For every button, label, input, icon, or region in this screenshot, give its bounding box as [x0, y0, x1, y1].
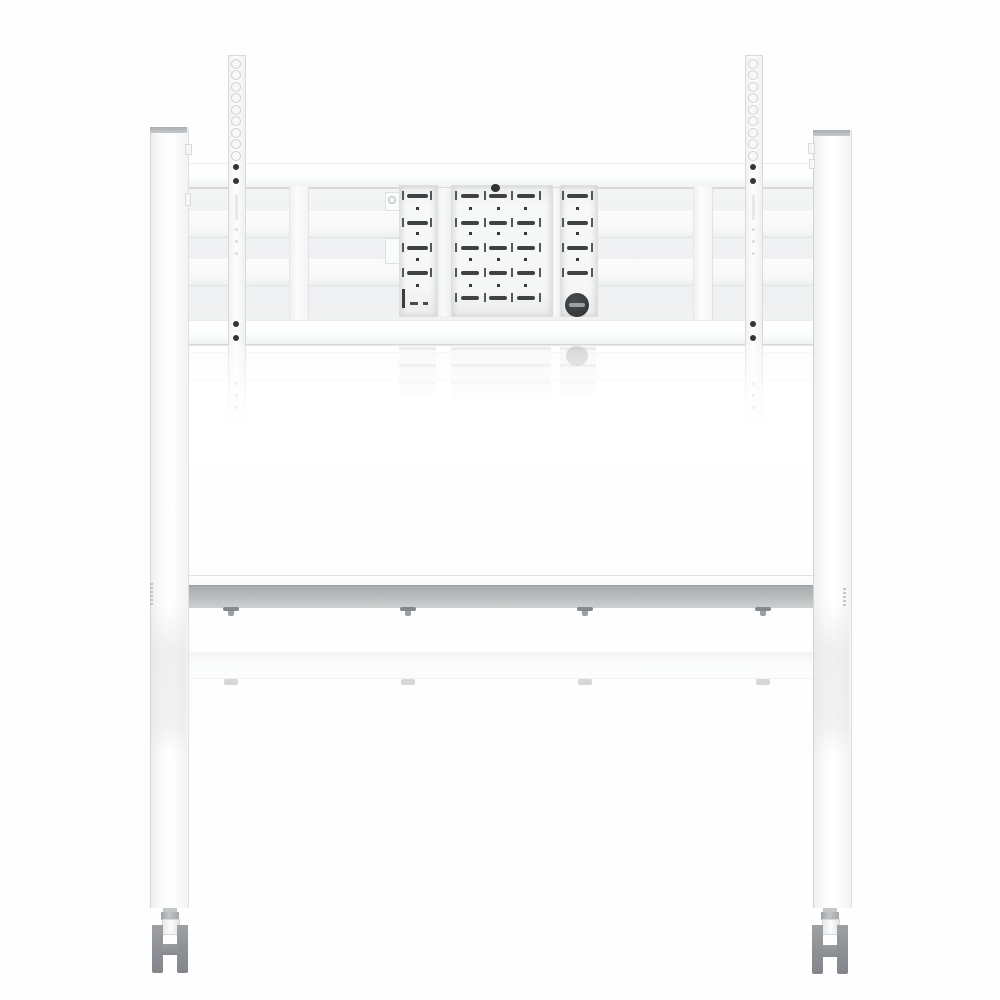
- right-caster-fork-back: [837, 925, 848, 974]
- vesa-slot: [489, 296, 507, 300]
- vesa-slot: [567, 194, 588, 198]
- vesa-tick: [484, 293, 486, 302]
- rail-hole-faint: [752, 394, 755, 397]
- vesa-dot: [497, 258, 500, 261]
- vesa-tick: [562, 218, 564, 227]
- right-caster-fork-front: [812, 925, 823, 974]
- vesa-slot: [517, 246, 535, 250]
- shelf-screw-tip: [760, 611, 766, 616]
- vesa-tick: [402, 243, 404, 252]
- rail-hole: [748, 139, 758, 149]
- vesa-tick: [430, 268, 432, 277]
- vesa-dot: [497, 207, 500, 210]
- inner-vertical-right: [693, 186, 713, 320]
- rail-hole-faint: [235, 382, 238, 385]
- rail-slot: [235, 194, 238, 220]
- vesa-slot: [517, 221, 535, 225]
- right-leg-top-cap: [813, 130, 850, 136]
- vesa-slot: [461, 194, 479, 198]
- vesa-slot: [407, 271, 428, 275]
- vesa-tick: [484, 218, 486, 227]
- vesa-tick: [455, 293, 457, 302]
- rail-hole: [231, 128, 241, 138]
- right-leg-column: [813, 130, 852, 908]
- vesa-dot: [576, 232, 579, 235]
- shelf-screw-tip: [228, 611, 234, 616]
- vesa-slot: [461, 246, 479, 250]
- vesa-slot: [567, 246, 588, 250]
- left-leg-label-marks: [150, 583, 153, 607]
- vesa-slot: [517, 271, 535, 275]
- rail-hole: [748, 70, 758, 80]
- rail-screw: [750, 321, 756, 327]
- lower-crossbar: [185, 320, 815, 346]
- left-leg-screw-nub: [185, 144, 192, 155]
- vesa-tick: [539, 268, 541, 277]
- vesa-dot: [524, 232, 527, 235]
- vesa-dot: [497, 232, 500, 235]
- vesa-dot: [416, 258, 419, 261]
- left-leg-column: [150, 127, 189, 908]
- vesa-tick: [455, 218, 457, 227]
- vesa-tick: [562, 191, 564, 200]
- vesa-tick: [455, 191, 457, 200]
- plate-gap-bar-left: [436, 188, 451, 316]
- vesa-tick: [402, 191, 404, 200]
- vesa-slot: [461, 221, 479, 225]
- rail-hole-faint: [235, 406, 238, 409]
- product-photo-canvas: [0, 0, 1000, 1000]
- left-leg-top-cap: [150, 127, 187, 133]
- vesa-dot: [469, 284, 472, 287]
- vesa-dot: [416, 207, 419, 210]
- vesa-tick: [402, 218, 404, 227]
- vesa-slot: [567, 221, 588, 225]
- left-leg-screw-nub-2: [185, 193, 191, 206]
- reflection-fade: [186, 345, 814, 463]
- vesa-tick: [430, 191, 432, 200]
- vesa-tick: [562, 243, 564, 252]
- vesa-slot: [461, 271, 479, 275]
- vesa-slot: [489, 246, 507, 250]
- vesa-tick: [402, 268, 404, 277]
- rail-screw: [233, 335, 239, 341]
- vesa-tick: [591, 191, 593, 200]
- shelf-reflection: [187, 652, 813, 679]
- vesa-tick: [430, 218, 432, 227]
- right-leg-label-marks: [843, 588, 846, 606]
- rail-screw: [750, 335, 756, 341]
- lock-knob-slot: [569, 303, 585, 307]
- vesa-tick: [430, 243, 432, 252]
- rail-screw: [750, 164, 756, 170]
- rail-hole: [231, 59, 241, 69]
- rail-hole: [231, 151, 241, 161]
- left-caster-fork-back: [177, 925, 188, 973]
- right-leg-screw-nub: [808, 143, 815, 154]
- rail-hole: [748, 105, 758, 115]
- shelf-screw-reflection: [578, 679, 592, 685]
- vesa-tick: [484, 191, 486, 200]
- rail-screw: [233, 178, 239, 184]
- vesa-slot: [489, 221, 507, 225]
- vesa-dot: [469, 258, 472, 261]
- vesa-dot: [524, 207, 527, 210]
- plate-top-hole: [491, 184, 500, 192]
- rail-hole: [231, 105, 241, 115]
- vesa-tick: [591, 243, 593, 252]
- rail-hole: [748, 116, 758, 126]
- rail-hole: [231, 70, 241, 80]
- rail-hole: [231, 93, 241, 103]
- vesa-slot: [489, 194, 507, 198]
- left-plate-vertical-slot: [402, 289, 405, 308]
- vesa-tick: [591, 218, 593, 227]
- vesa-tick: [539, 243, 541, 252]
- vesa-dot: [416, 232, 419, 235]
- vesa-tick: [539, 218, 541, 227]
- rail-hole-small: [235, 228, 238, 231]
- vesa-dot: [576, 207, 579, 210]
- vesa-slot: [489, 271, 507, 275]
- rail-hole-small: [752, 252, 755, 255]
- shelf-screw-reflection: [756, 679, 770, 685]
- vesa-slot: [567, 271, 588, 275]
- right-leg-screw-nub-2: [809, 159, 815, 169]
- vesa-dot: [524, 258, 527, 261]
- rail-hole-faint: [752, 382, 755, 385]
- vesa-tick: [484, 268, 486, 277]
- left-plate-dash: [410, 302, 418, 305]
- rail-hole-small: [752, 228, 755, 231]
- rail-hole: [231, 116, 241, 126]
- vesa-slot: [407, 246, 428, 250]
- shelf-screw-reflection: [224, 679, 238, 685]
- vesa-tick: [511, 191, 513, 200]
- rail-hole-small: [752, 240, 755, 243]
- rail-slot: [752, 194, 755, 220]
- rail-hole: [748, 128, 758, 138]
- rail-hole: [748, 82, 758, 92]
- vesa-dot: [469, 207, 472, 210]
- rail-screw: [233, 321, 239, 327]
- vesa-slot: [407, 221, 428, 225]
- vesa-slot: [461, 296, 479, 300]
- left-caster-fork-front: [152, 925, 163, 973]
- left-plate-dash-2: [423, 302, 428, 305]
- rail-hole-faint: [235, 394, 238, 397]
- vesa-tick: [539, 191, 541, 200]
- rail-hole: [748, 59, 758, 69]
- shelf-front-edge: [187, 585, 813, 608]
- vesa-dot: [416, 284, 419, 287]
- vesa-tick: [539, 293, 541, 302]
- rail-hole: [748, 151, 758, 161]
- vesa-dot: [524, 284, 527, 287]
- right-leg-shading: [814, 605, 849, 755]
- vesa-dot: [469, 232, 472, 235]
- vesa-dot: [497, 284, 500, 287]
- vesa-tick: [484, 243, 486, 252]
- shelf-screw-reflection: [401, 679, 415, 685]
- rail-hole-small: [235, 240, 238, 243]
- rail-screw: [750, 178, 756, 184]
- shelf-screw-tip: [582, 611, 588, 616]
- vesa-tick: [455, 268, 457, 277]
- left-leg-shading: [151, 605, 186, 755]
- vesa-tick: [562, 268, 564, 277]
- shelf-screw-tip: [405, 611, 411, 616]
- vesa-tick: [511, 243, 513, 252]
- rail-hole: [748, 93, 758, 103]
- vesa-tick: [591, 268, 593, 277]
- rail-screw: [233, 164, 239, 170]
- rail-hole: [231, 139, 241, 149]
- vesa-dot: [576, 258, 579, 261]
- rail-hole-small: [235, 252, 238, 255]
- vesa-tick: [511, 293, 513, 302]
- vesa-slot: [407, 194, 428, 198]
- rail-hole-faint: [752, 406, 755, 409]
- vesa-slot: [517, 194, 535, 198]
- vesa-tick: [511, 268, 513, 277]
- inner-vertical-left: [289, 186, 309, 320]
- vesa-tick: [455, 243, 457, 252]
- vesa-slot: [517, 296, 535, 300]
- bracket-ear-hole: [388, 196, 396, 204]
- rail-hole: [231, 82, 241, 92]
- vesa-tick: [511, 218, 513, 227]
